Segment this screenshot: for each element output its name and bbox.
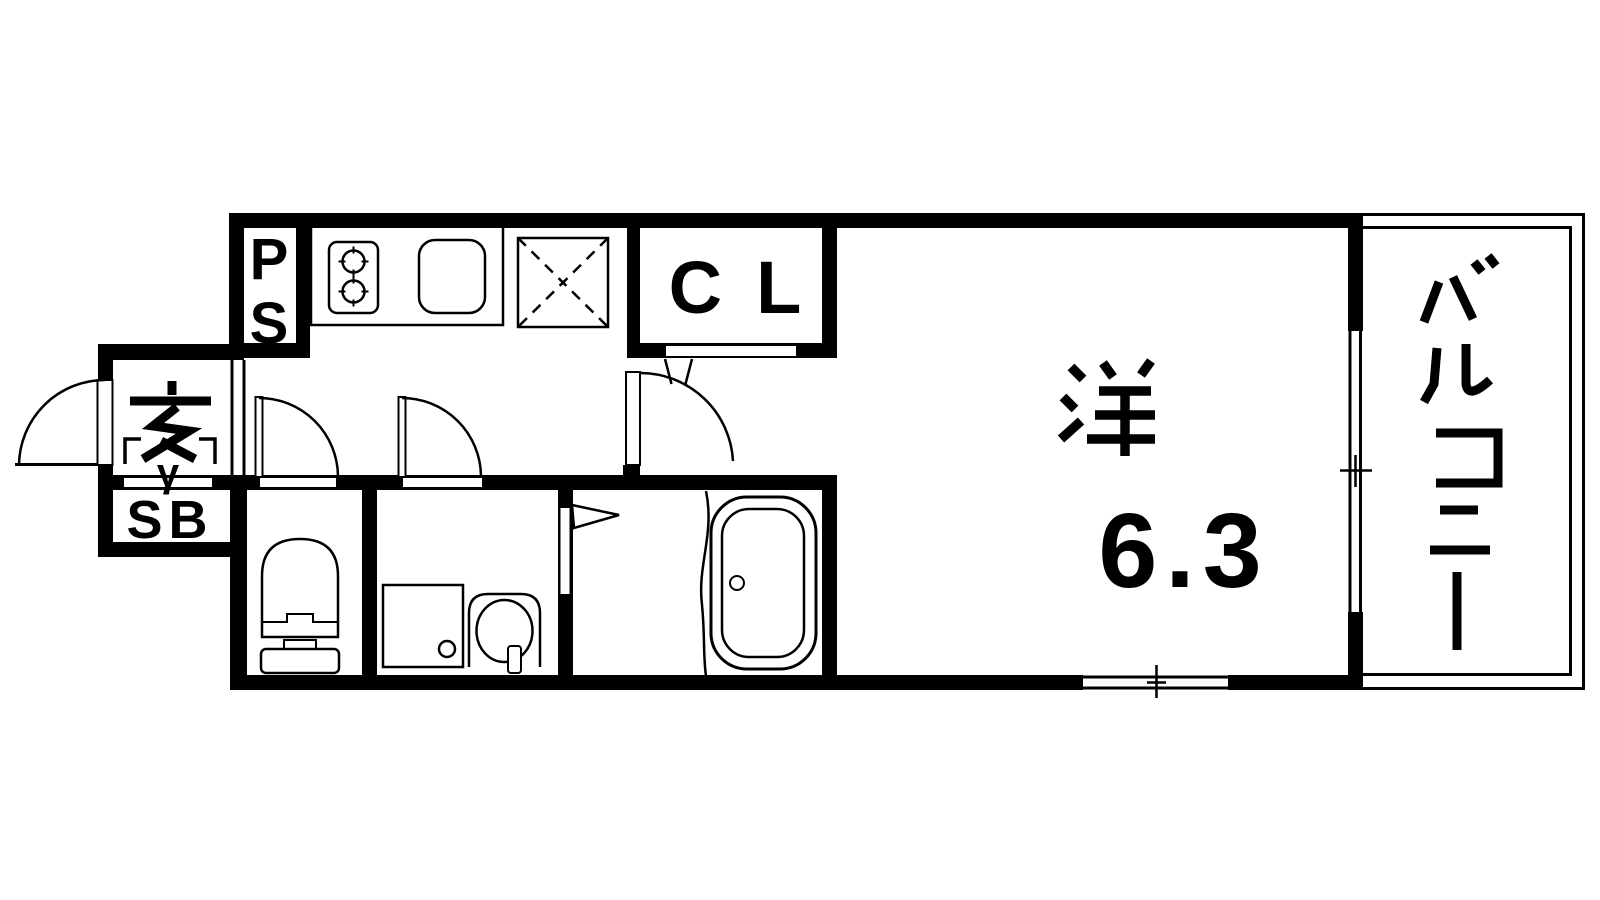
wall-toilet-washroom bbox=[362, 490, 377, 675]
wall-door-stub bbox=[623, 465, 640, 475]
washing-machine-pan-icon bbox=[383, 585, 463, 667]
toilet-door bbox=[256, 397, 339, 477]
step-bracket-right bbox=[199, 439, 215, 464]
door-swing-arc bbox=[19, 380, 105, 465]
wall-bottom-right bbox=[1228, 675, 1363, 690]
washbasin-icon bbox=[469, 594, 540, 673]
kanji-you-glyph bbox=[1061, 361, 1155, 456]
door-leaf bbox=[256, 397, 263, 477]
label-pipe-space: P S bbox=[250, 227, 289, 356]
kitchen-counter bbox=[311, 226, 503, 326]
main-room-door bbox=[626, 359, 733, 465]
folding-door-pennant bbox=[572, 505, 619, 528]
toilet-door-opening bbox=[259, 477, 337, 488]
rear-window bbox=[1083, 665, 1228, 698]
door-leaf bbox=[399, 397, 406, 477]
balcony-railing bbox=[1363, 215, 1584, 689]
kana-ko-glyph bbox=[1436, 433, 1498, 483]
fridge-x-line bbox=[518, 238, 608, 327]
washroom-door bbox=[399, 397, 482, 477]
burner bbox=[343, 251, 365, 273]
tub-apron-curve bbox=[701, 491, 708, 676]
label-shoe-box: SB bbox=[126, 490, 213, 550]
door-leaf bbox=[560, 507, 571, 595]
stove-icon bbox=[329, 242, 378, 313]
kana-ru-glyph bbox=[1424, 344, 1490, 402]
basin-bowl bbox=[477, 600, 533, 662]
kana-ba-glyph bbox=[1424, 256, 1496, 322]
door-swing-arc bbox=[402, 398, 481, 476]
entrance-door bbox=[15, 380, 113, 465]
wall-entrance-left-upper bbox=[98, 344, 113, 380]
door-swing-arc bbox=[640, 373, 733, 461]
toilet-hinge bbox=[284, 640, 316, 649]
kana-ni-glyph bbox=[1430, 510, 1490, 550]
kanji-gen-glyph bbox=[130, 381, 211, 459]
wall-cl-left bbox=[627, 213, 640, 358]
balcony-window bbox=[1340, 330, 1372, 613]
step-bracket-left bbox=[125, 439, 141, 464]
wall-bottom-left bbox=[230, 675, 1083, 690]
door-openings bbox=[123, 345, 797, 488]
toilet-icon bbox=[261, 539, 339, 673]
door-leaf bbox=[98, 380, 113, 465]
entrance-step-mark: γ bbox=[157, 451, 180, 495]
entrance-step-boundary bbox=[232, 360, 244, 475]
wall-toilet-left bbox=[230, 475, 247, 690]
label-western-room: 6.3 bbox=[1061, 361, 1270, 610]
label-closet: CL bbox=[669, 246, 836, 329]
floor-plan-svg: P S CL SB γ 6.3 bbox=[0, 0, 1600, 900]
washroom-door-opening bbox=[402, 477, 483, 488]
balcony-inner-line bbox=[1363, 228, 1571, 675]
pan-drain bbox=[439, 641, 455, 657]
label-balcony bbox=[1424, 256, 1498, 650]
balcony-outer-line bbox=[1363, 215, 1584, 689]
bathroom-folding-door bbox=[560, 505, 620, 595]
wall-entrance-top bbox=[98, 344, 244, 360]
door-leaf bbox=[626, 372, 640, 465]
basin-faucet bbox=[508, 646, 521, 673]
ps-char-s: S bbox=[250, 291, 289, 356]
kitchen-sink-icon bbox=[419, 240, 485, 313]
door-jamb-mark bbox=[665, 359, 672, 384]
toilet-tank bbox=[261, 649, 339, 673]
room-size-label: 6.3 bbox=[1098, 492, 1269, 610]
closet-sliding-door bbox=[665, 345, 797, 357]
wall-bath-right bbox=[822, 475, 837, 690]
burner bbox=[343, 281, 365, 303]
floor-plan-page: P S CL SB γ 6.3 bbox=[0, 0, 1600, 900]
wall-ps-left bbox=[229, 213, 244, 358]
refrigerator-space-icon bbox=[518, 238, 608, 327]
ps-char-p: P bbox=[250, 227, 289, 292]
wall-right-upper bbox=[1348, 213, 1363, 331]
wall-ps-right bbox=[296, 213, 310, 358]
door-swing-arc bbox=[259, 398, 338, 476]
door-jamb-mark bbox=[686, 359, 693, 384]
bathtub-icon bbox=[701, 491, 816, 676]
